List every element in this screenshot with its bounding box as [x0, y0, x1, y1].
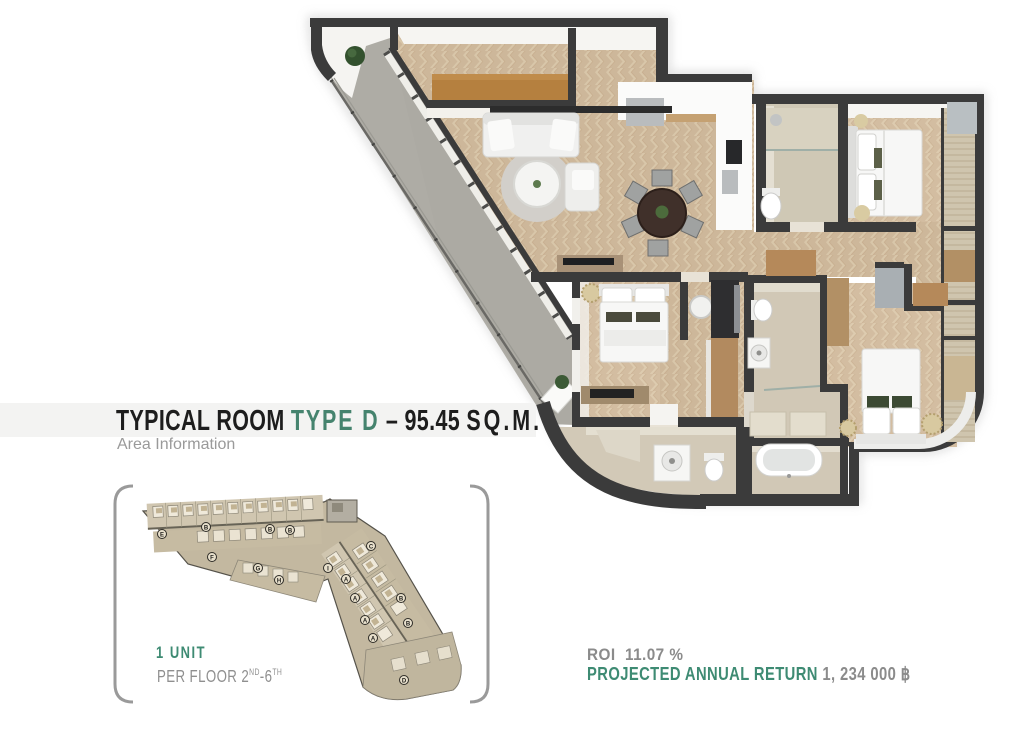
- svg-text:B: B: [268, 528, 273, 534]
- svg-text:B: B: [204, 526, 209, 532]
- svg-text:A: A: [371, 637, 376, 643]
- svg-text:C: C: [369, 545, 374, 551]
- svg-text:A: A: [344, 578, 349, 584]
- svg-text:B: B: [406, 622, 411, 628]
- svg-text:B: B: [399, 597, 404, 603]
- svg-text:B: B: [288, 529, 293, 535]
- svg-text:A: A: [363, 619, 368, 625]
- svg-text:E: E: [160, 533, 164, 539]
- svg-text:A: A: [353, 597, 358, 603]
- svg-text:G: G: [256, 567, 261, 573]
- svg-text:D: D: [402, 679, 407, 685]
- svg-text:F: F: [210, 556, 214, 562]
- svg-text:H: H: [277, 579, 281, 585]
